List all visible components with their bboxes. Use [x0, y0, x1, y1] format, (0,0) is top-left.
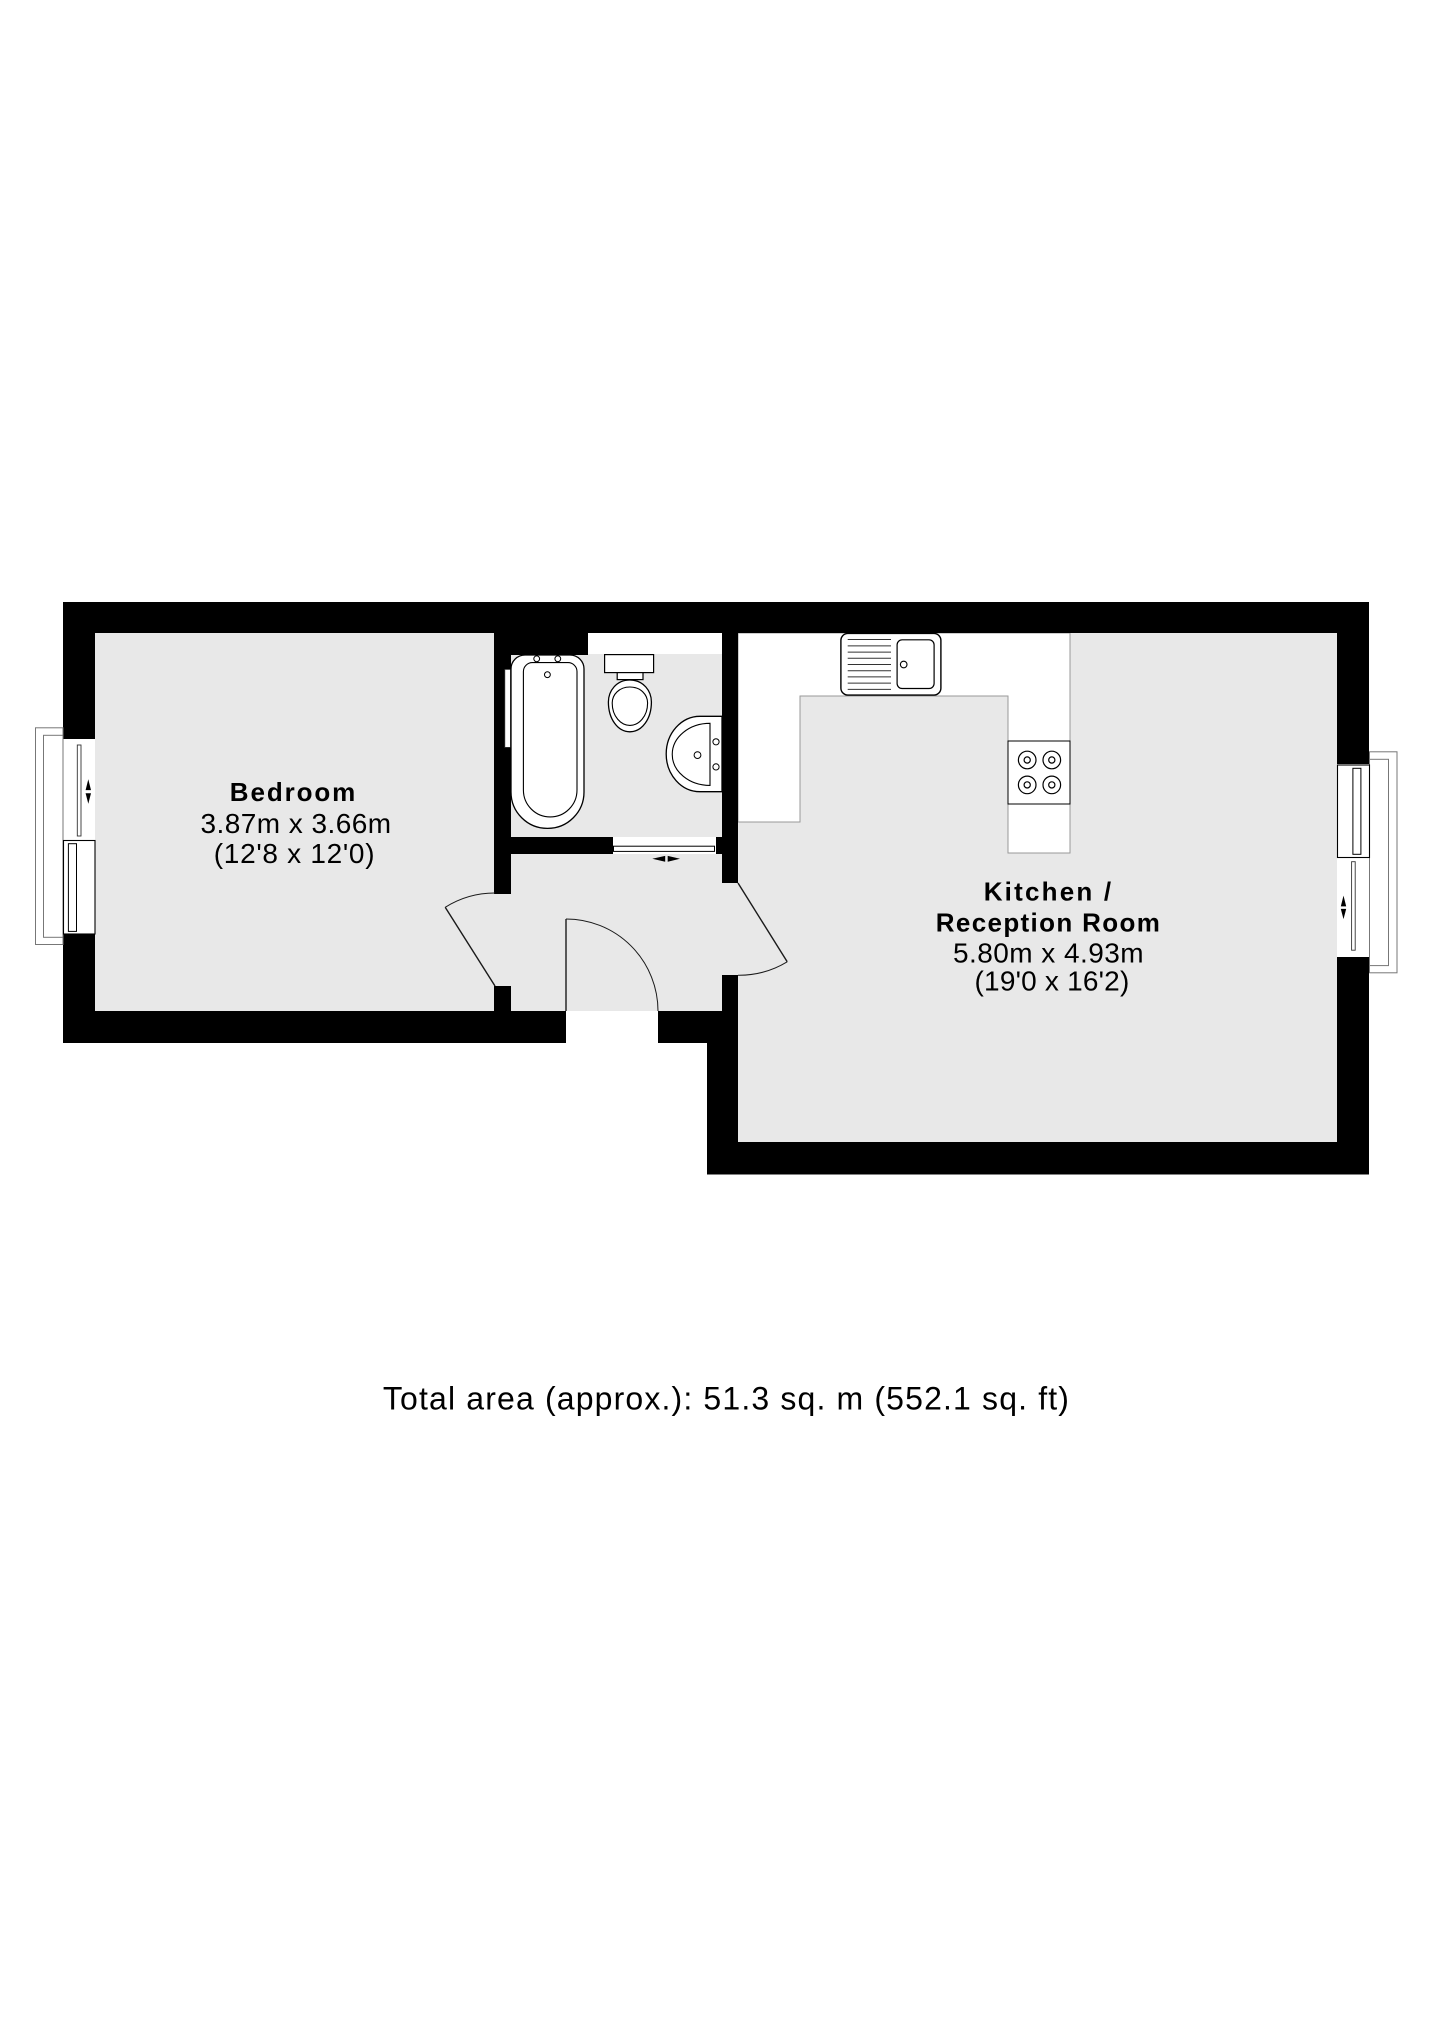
svg-text:(12'8 x 12'0): (12'8 x 12'0) — [214, 838, 375, 869]
svg-text:Kitchen /: Kitchen / — [984, 877, 1114, 907]
svg-text:(19'0 x 16'2): (19'0 x 16'2) — [975, 966, 1130, 997]
svg-text:5.80m x 4.93m: 5.80m x 4.93m — [953, 937, 1144, 968]
svg-text:Reception Room: Reception Room — [936, 907, 1161, 937]
svg-text:Bedroom: Bedroom — [230, 777, 357, 807]
svg-text:Total area (approx.): 51.3 sq.: Total area (approx.): 51.3 sq. m (552.1 … — [383, 1381, 1070, 1417]
svg-text:3.87m x 3.66m: 3.87m x 3.66m — [200, 808, 391, 839]
